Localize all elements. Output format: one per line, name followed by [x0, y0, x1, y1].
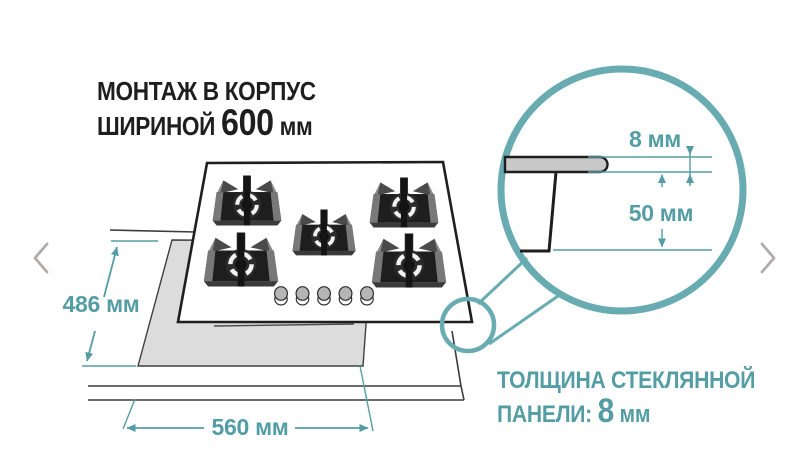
cutout-depth-label: 486 мм [63, 291, 140, 317]
burner-grate-front-left [204, 233, 278, 287]
glass-thickness-caption: ТОЛЩИНА СТЕКЛЯННОЙ ПАНЕЛИ: 8 мм [497, 366, 755, 430]
control-knob [296, 287, 309, 305]
control-knob [318, 287, 331, 305]
cutout-area [138, 240, 372, 366]
caption-unit: мм [620, 401, 651, 428]
burner-grate-middle [293, 210, 356, 256]
cabinet-side-profile [520, 172, 556, 251]
magnifier-source-circle [442, 299, 494, 351]
dimension-cutout-width: 560 мм [123, 366, 373, 440]
caption-value: 8 [598, 392, 614, 430]
edge-cross-section: 8 мм 50 мм [505, 126, 712, 251]
carousel-next-button[interactable] [753, 234, 783, 282]
control-knob [275, 287, 288, 305]
caption-prefix: ПАНЕЛИ: [497, 401, 592, 428]
hob-underside-edge [214, 324, 354, 326]
chevron-left-icon [26, 234, 56, 282]
title-line1: МОНТАЖ В КОРПУС [97, 75, 316, 107]
control-knob [339, 287, 352, 305]
cutout-width-label: 560 мм [212, 414, 289, 440]
caption-line2: ПАНЕЛИ: 8 мм [497, 396, 755, 430]
hob-panel [178, 162, 472, 326]
glass-panel-profile [505, 157, 608, 172]
burner-grate-back-left [213, 176, 282, 226]
hob-glass-surface [178, 162, 472, 322]
magnifier-callout [442, 69, 743, 351]
title-width-prefix: ШИРИНОЙ [97, 111, 215, 141]
control-knob [361, 287, 374, 305]
magnifier-detail-circle [501, 69, 743, 311]
countertop [88, 230, 464, 400]
product-gallery-slide: 486 мм 560 мм [0, 0, 803, 475]
caption-line1: ТОЛЩИНА СТЕКЛЯННОЙ [497, 366, 755, 396]
carousel-prev-button[interactable] [26, 234, 56, 282]
burner-grate-back-right [370, 178, 439, 228]
chevron-right-icon [753, 234, 783, 282]
title-width-unit: мм [280, 111, 313, 141]
control-knobs [275, 287, 374, 305]
title-line2: ШИРИНОЙ 600 мм [97, 107, 316, 142]
dimension-cutout-depth: 486 мм [63, 241, 159, 366]
cabinet-clearance-dim-label: 50 мм [629, 200, 694, 226]
glass-thickness-dim-label: 8 мм [629, 126, 681, 152]
burner-grate-front-right [372, 234, 446, 288]
title-width-value: 600 [221, 102, 274, 143]
page-title: МОНТАЖ В КОРПУС ШИРИНОЙ 600 мм [97, 75, 316, 142]
